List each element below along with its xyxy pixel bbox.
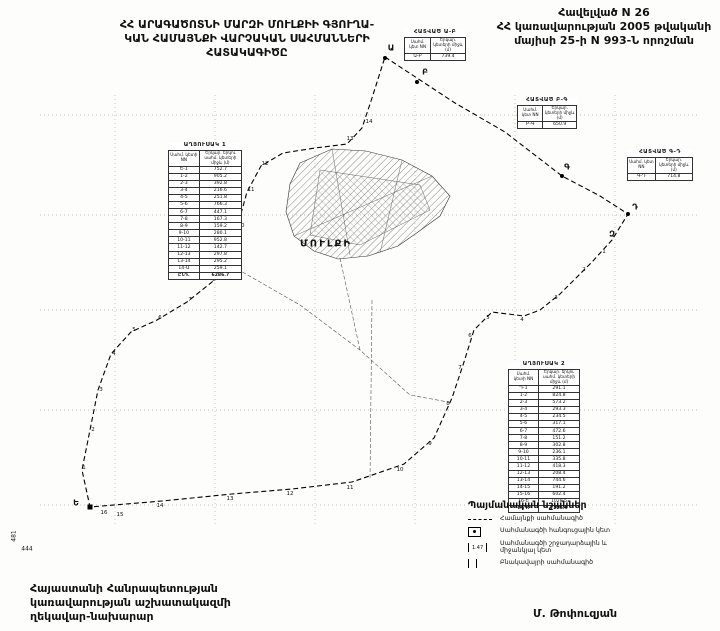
table-header: Սահմ. կետ NN Երկար. կետերի միջև (մ) — [518, 105, 577, 121]
table-row: Դ-1291.1 — [509, 385, 580, 392]
legend-item-settlement-boundary: Բնակավայրի սահմանագիծ — [468, 559, 644, 568]
table-row: 7-8167.3 — [169, 216, 242, 223]
table-cell: 418.3 — [538, 463, 579, 470]
map-point-label: 14 — [366, 119, 373, 125]
table-row: 8-9159.2 — [169, 223, 242, 230]
column-header-length: Երկար. երկու սահմ. կետերի միջև (մ) — [199, 150, 241, 166]
column-header-point: Սահմ. կետի NN — [169, 150, 200, 166]
appendix-number: Հավելված N 26 — [490, 6, 718, 20]
table-cell: 766.3 — [199, 202, 241, 209]
table-cell: 752.7 — [199, 166, 241, 173]
table-cell: 208.4 — [538, 470, 579, 477]
map-point-label: 12 — [287, 491, 294, 497]
table-row: 5-6766.3 — [169, 202, 242, 209]
map-point-label: 3 — [554, 295, 558, 301]
table-cell: 392.8 — [199, 180, 241, 187]
table-cell: 1-2 — [509, 392, 539, 399]
legend-item-turning-point: 1.47 Սահմանագծի շրջադարձային և միջանկյալ… — [468, 541, 644, 555]
legend: Պայմանական նշաններ Համայնքի սահմանագիծ Ս… — [468, 500, 644, 572]
table-row: Ա-Բ739.4 — [405, 53, 466, 60]
dashed-line-icon — [468, 519, 500, 520]
signatory-title: Հայաստանի Հանրապետության կառավարության ա… — [30, 582, 231, 624]
table-cell: 11-12 — [169, 244, 200, 251]
column-header-point: Սահմ. կետի NN — [509, 369, 539, 385]
table-cell: 6-7 — [509, 428, 539, 435]
map-point-label: 4 — [112, 351, 116, 357]
column-header-point: Սահմ. կետ NN — [518, 105, 543, 121]
signatory-title-line: ղեկավար-նախարար — [30, 610, 231, 624]
table-header: Սահմ. կետի NN Երկար. երկու սահմ. կետերի … — [169, 150, 242, 166]
segment-table-bg: ՀԱՏՎԱԾ Բ-Գ Սահմ. կետ NN Երկար. կետերի մի… — [517, 98, 577, 129]
table-cell: 12-13 — [169, 251, 200, 258]
signatory-title-line: կառավարության աշխատակազմի — [30, 596, 231, 610]
map-point-label: 481 — [11, 530, 18, 541]
table-row: Գ-Դ714.8 — [628, 173, 693, 180]
table-cell: 280.1 — [199, 230, 241, 237]
map-point-label: 15 — [117, 512, 124, 518]
table-body: Գ-Դ714.8 — [628, 173, 693, 180]
table-cell: 251.8 — [199, 195, 241, 202]
table-row: ԸՆԴ.6286.7 — [169, 272, 242, 279]
column-header-length: Երկար. կետերի միջև (մ) — [655, 157, 692, 173]
table-cell: 7-8 — [509, 435, 539, 442]
decision-number: մայիսի 25-ի N 993-Ն որոշման — [490, 34, 718, 48]
table-row: 3-4216.6 — [169, 187, 242, 194]
table-cell: 10-11 — [169, 237, 200, 244]
map-point-label: 1 — [82, 465, 86, 471]
legend-item-community-boundary: Համայնքի սահմանագիծ — [468, 516, 644, 523]
decision-year: ՀՀ կառավարության 2005 թվականի — [490, 20, 718, 34]
table-row: 1-2824.8 — [509, 392, 580, 399]
map-point-label: 2 — [582, 267, 586, 273]
table-row: 15-16602.4 — [509, 491, 580, 498]
table-cell: 291.1 — [538, 385, 579, 392]
table-cell: 13-14 — [169, 258, 200, 265]
table-row: 9-10236.1 — [509, 449, 580, 456]
table-cell: 714.8 — [655, 173, 692, 180]
table-cell: 6-7 — [169, 209, 200, 216]
table-cell: 1-2 — [169, 173, 200, 180]
table-cell: 905.2 — [199, 173, 241, 180]
turning-point-icon: 1.47 — [468, 543, 500, 552]
plan-title-line: ՀՀ ԱՐԱԳԱԾՈՏՆԻ ՄԱՐԶԻ ՄՈՒԼՔԻԻ ԳՅՈՒՂԱ- — [98, 18, 396, 32]
table-cell: 8-9 — [169, 223, 200, 230]
table-row: 4-5251.8 — [169, 195, 242, 202]
table-cell: 15-16 — [509, 491, 539, 498]
table-row: 5-6317.1 — [509, 421, 580, 428]
table-row: 14-Ա259.1 — [169, 265, 242, 272]
legend-label: Սահմանագծի հանգուցային կետ — [500, 528, 610, 535]
table-header: Սահմ. կետ NN Երկար. կետերի միջև (մ) — [405, 37, 466, 53]
table-cell: Ա-Բ — [405, 53, 431, 60]
table-cell: 573.2 — [538, 399, 579, 406]
plan-title-line: ՀԱՏԱԿԱԳԻԾԸ — [98, 46, 396, 60]
table-row: 11-12418.3 — [509, 463, 580, 470]
village-name-label: ՄՈՒԼՔԻ — [300, 239, 352, 250]
table-cell: 302.8 — [538, 442, 579, 449]
signatory-title-line: Հայաստանի Հանրապետության — [30, 582, 231, 596]
table-cell: 293.3 — [538, 406, 579, 413]
table-cell: 167.3 — [199, 216, 241, 223]
table-title: ԱՂՅՈՒՍԱԿ 1 — [168, 143, 242, 149]
table-cell: 824.8 — [538, 392, 579, 399]
table-body: Ա-Բ739.4 — [405, 53, 466, 60]
table-cell: Բ-Գ — [518, 121, 543, 128]
legend-label: Բնակավայրի սահմանագիծ — [500, 560, 593, 567]
table-row: 6-7472.6 — [509, 428, 580, 435]
table-cell: 4-5 — [169, 195, 200, 202]
legend-title: Պայմանական նշաններ — [468, 500, 644, 511]
table-cell: 142.7 — [199, 244, 241, 251]
map-point-label: 4 — [520, 317, 524, 323]
table-cell: 5-6 — [169, 202, 200, 209]
table-row: Ե-1752.7 — [169, 166, 242, 173]
boundary-marker — [626, 212, 630, 216]
table-cell: 9-10 — [169, 230, 200, 237]
table-cell: 952.8 — [199, 237, 241, 244]
table-cell: Գ-Դ — [628, 173, 656, 180]
boundary-node-label: Ե — [73, 499, 79, 508]
map-point-label: 1 — [602, 249, 606, 255]
table-cell: 447.1 — [199, 209, 241, 216]
table-cell: 3-4 — [509, 406, 539, 413]
table-header: Սահմ. կետ NN Երկար. կետերի միջև (մ) — [628, 157, 693, 173]
table-cell: ԸՆԴ. — [169, 272, 200, 279]
map-point-label: 14 — [157, 503, 164, 509]
table-row: 2-3573.2 — [509, 399, 580, 406]
appendix-reference: Հավելված N 26 ՀՀ կառավարության 2005 թվակ… — [490, 6, 718, 48]
table-row: 10-11952.8 — [169, 237, 242, 244]
map-point-label: 5 — [132, 327, 136, 333]
map-point-label: 444 — [21, 546, 32, 553]
table-row: 6-7447.1 — [169, 209, 242, 216]
map-point-label: 6 — [468, 333, 472, 339]
cadastral-plan-page: ԱԲԳԴԶԵՄՈՒԼՔԻ4814441234567891011121314123… — [0, 0, 720, 631]
table-row: 11-12142.7 — [169, 244, 242, 251]
legend-label: Սահմանագծի շրջադարձային և միջանկյալ կետ — [500, 541, 644, 555]
boundary-marker — [88, 505, 93, 510]
table-cell: 191.2 — [538, 484, 579, 491]
table-row: 1-2905.2 — [169, 173, 242, 180]
distance-table-right: ԱՂՅՈՒՍԱԿ 2 Սահմ. կետի NN Երկար. երկու սա… — [508, 362, 580, 513]
table-row: 12-13297.8 — [169, 251, 242, 258]
table-cell: 7-8 — [169, 216, 200, 223]
column-header-length: Երկար. կետերի միջև (մ) — [543, 105, 577, 121]
table-header: Սահմ. կետի NN Երկար. երկու սահմ. կետերի … — [509, 369, 580, 385]
map-point-label: 9 — [428, 441, 432, 447]
map-point-label: 10 — [397, 467, 404, 473]
map-point-label: 3 — [99, 387, 103, 393]
table-cell: 4-5 — [509, 414, 539, 421]
boundary-node-label: Բ — [422, 68, 428, 77]
table-cell: 295.2 — [199, 258, 241, 265]
column-header-length: Երկար. կետերի միջև (մ) — [431, 37, 466, 53]
table-row: 3-4293.3 — [509, 406, 580, 413]
map-point-label: 11 — [248, 187, 255, 193]
boundary-node-label: Գ — [564, 163, 570, 172]
table-cell: 739.4 — [431, 53, 466, 60]
table-cell: 5-6 — [509, 421, 539, 428]
settlement-line-icon — [468, 559, 500, 568]
segment-table-ab: ՀԱՏՎԱԾ Ա-Բ Սահմ. կետ NN Երկար. կետերի մի… — [404, 30, 466, 61]
map-point-label: 13 — [347, 136, 354, 142]
table-title: ՀԱՏՎԱԾ Ա-Բ — [404, 30, 466, 36]
table-cell: 2-3 — [169, 180, 200, 187]
table-title: ԱՂՅՈՒՍԱԿ 2 — [508, 362, 580, 368]
map-point-label: 2 — [91, 427, 95, 433]
plan-title-line: ԿԱՆ ՀԱՄԱՅՆՔԻ ՎԱՐՉԱԿԱՆ ՍԱՀՄԱՆՆԵՐԻ — [98, 32, 396, 46]
segment-table-gd: ՀԱՏՎԱԾ Գ-Դ Սահմ. կետ NN Երկար. կետերի մի… — [627, 150, 693, 181]
column-header-point: Սահմ. կետ NN — [628, 157, 656, 173]
table-cell: 335.8 — [538, 456, 579, 463]
table-cell: 151.2 — [538, 435, 579, 442]
table-cell: 472.6 — [538, 428, 579, 435]
map-point-label: 7 — [458, 365, 462, 371]
boundary-marker — [560, 174, 564, 178]
map-point-label: 11 — [347, 485, 354, 491]
table-cell: 650.9 — [543, 121, 577, 128]
column-header-point: Սահմ. կետ NN — [405, 37, 431, 53]
map-point-label: 8 — [446, 401, 450, 407]
boundary-node-label: Դ — [632, 203, 638, 212]
legend-label: Համայնքի սահմանագիծ — [500, 516, 583, 523]
plan-title: ՀՀ ԱՐԱԳԱԾՈՏՆԻ ՄԱՐԶԻ ՄՈՒԼՔԻԻ ԳՅՈՒՂԱ- ԿԱՆ … — [98, 18, 396, 60]
table-row: 10-11335.8 — [509, 456, 580, 463]
map-point-label: 13 — [227, 496, 234, 502]
table-cell: 159.2 — [199, 223, 241, 230]
table-cell: Ե-1 — [169, 166, 200, 173]
table-cell: 297.8 — [199, 251, 241, 258]
table-cell: 3-4 — [169, 187, 200, 194]
table-cell: 9-10 — [509, 449, 539, 456]
table-row: 7-8151.2 — [509, 435, 580, 442]
table-row: 14-15191.2 — [509, 484, 580, 491]
table-body: Դ-1291.11-2824.82-3573.23-4293.34-5234.5… — [509, 385, 580, 512]
table-cell: 602.4 — [538, 491, 579, 498]
map-point-label: 5 — [486, 315, 490, 321]
table-row: 13-14744.6 — [509, 477, 580, 484]
table-cell: 14-15 — [509, 484, 539, 491]
table-row: 9-10280.1 — [169, 230, 242, 237]
table-title: ՀԱՏՎԱԾ Բ-Գ — [517, 98, 577, 104]
table-cell: 259.1 — [199, 265, 241, 272]
table-cell: 10-11 — [509, 456, 539, 463]
table-cell: 744.6 — [538, 477, 579, 484]
map-point-label: 7 — [188, 297, 192, 303]
table-row: Բ-Գ650.9 — [518, 121, 577, 128]
column-header-length: Երկար. երկու սահմ. կետերի միջև (մ) — [538, 369, 579, 385]
table-row: 2-3392.8 — [169, 180, 242, 187]
table-row: 13-14295.2 — [169, 258, 242, 265]
table-body: Բ-Գ650.9 — [518, 121, 577, 128]
table-row: 8-9302.8 — [509, 442, 580, 449]
table-cell: 13-14 — [509, 477, 539, 484]
map-point-label: 6 — [158, 315, 162, 321]
table-cell: 8-9 — [509, 442, 539, 449]
table-cell: 234.5 — [538, 414, 579, 421]
boundary-marker — [415, 80, 419, 84]
table-cell: 317.1 — [538, 421, 579, 428]
table-cell: 11-12 — [509, 463, 539, 470]
signatory-name: Մ. Թոփուզյան — [533, 607, 617, 620]
table-cell: 2-3 — [509, 399, 539, 406]
node-point-icon — [468, 527, 500, 537]
map-point-label: 16 — [101, 510, 108, 516]
table-row: 4-5234.5 — [509, 414, 580, 421]
table-row: 12-13208.4 — [509, 470, 580, 477]
table-body: Ե-1752.71-2905.22-3392.83-4216.64-5251.8… — [169, 166, 242, 279]
table-cell: 216.6 — [199, 187, 241, 194]
table-title: ՀԱՏՎԱԾ Գ-Դ — [627, 150, 693, 156]
table-cell: 6286.7 — [199, 272, 241, 279]
boundary-node-label: Զ — [609, 230, 615, 239]
legend-item-node-point: Սահմանագծի հանգուցային կետ — [468, 527, 644, 537]
table-cell: 12-13 — [509, 470, 539, 477]
table-cell: 236.1 — [538, 449, 579, 456]
table-cell: Դ-1 — [509, 385, 539, 392]
map-point-label: 12 — [262, 161, 269, 167]
table-cell: 14-Ա — [169, 265, 200, 272]
distance-table-left: ԱՂՅՈՒՍԱԿ 1 Սահմ. կետի NN Երկար. երկու սա… — [168, 143, 242, 280]
